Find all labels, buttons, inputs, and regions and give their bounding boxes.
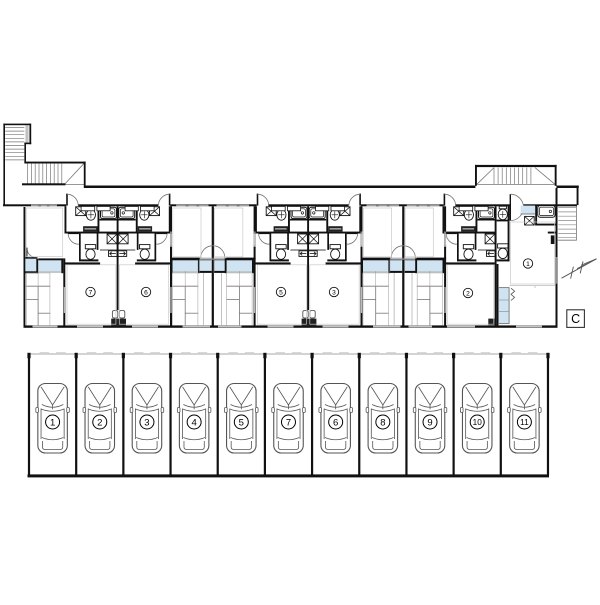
svg-text:8: 8 (380, 417, 385, 428)
svg-text:10: 10 (473, 418, 483, 427)
svg-text:C: C (571, 312, 580, 326)
svg-text:6: 6 (333, 417, 338, 428)
svg-text:5: 5 (279, 289, 283, 296)
svg-text:2: 2 (97, 417, 102, 428)
svg-text:11: 11 (520, 418, 529, 427)
svg-text:3: 3 (144, 417, 149, 428)
svg-text:1: 1 (526, 261, 530, 268)
svg-text:4: 4 (191, 417, 196, 428)
svg-text:6: 6 (144, 289, 148, 296)
svg-text:7: 7 (89, 289, 93, 296)
svg-text:9: 9 (427, 417, 432, 428)
svg-text:5: 5 (239, 417, 244, 428)
svg-text:7: 7 (286, 417, 291, 428)
svg-text:1: 1 (50, 417, 55, 428)
svg-text:2: 2 (466, 290, 470, 297)
svg-text:3: 3 (332, 289, 336, 296)
